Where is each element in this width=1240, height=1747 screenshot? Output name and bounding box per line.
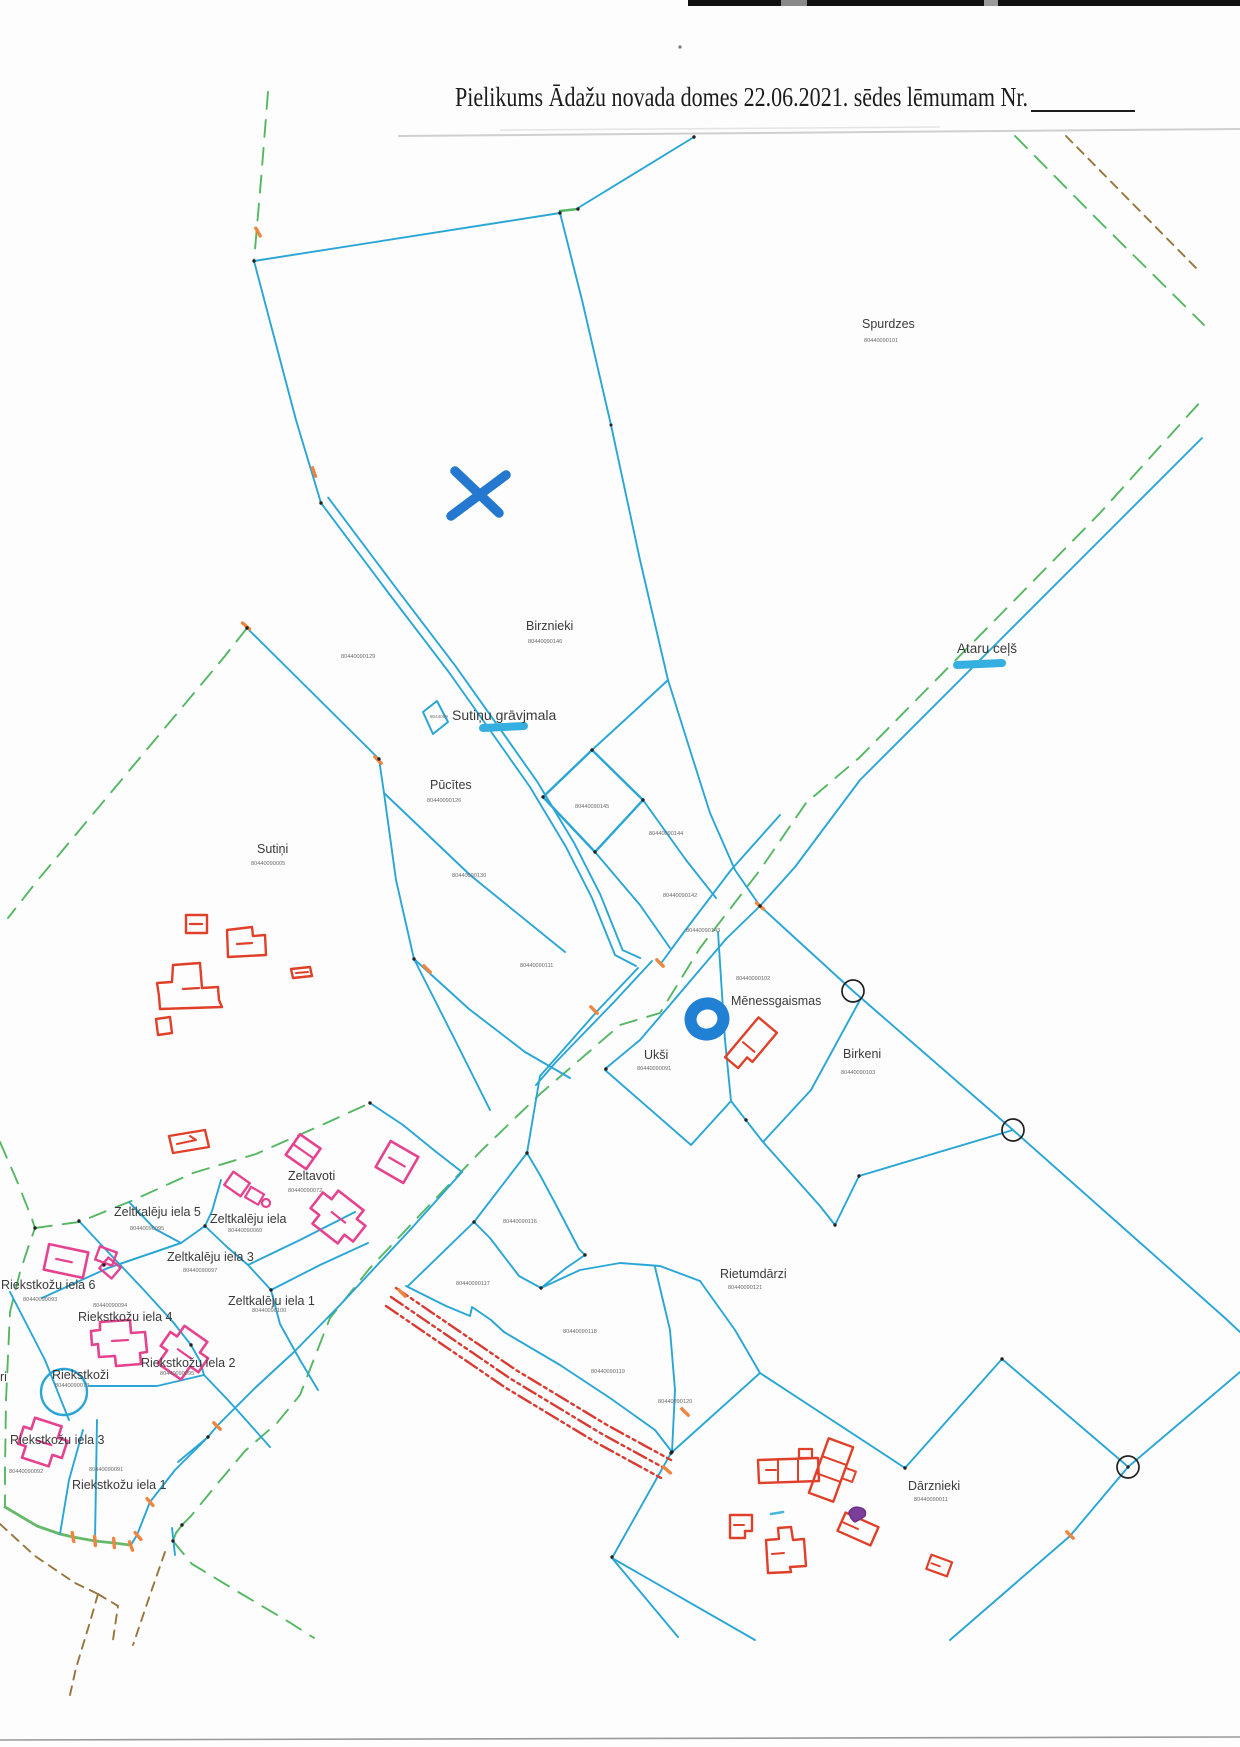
svg-text:Birznieki: Birznieki	[526, 619, 573, 633]
svg-text:Spurdzes: Spurdzes	[862, 317, 915, 331]
svg-text:Rietumdārzi: Rietumdārzi	[720, 1267, 787, 1281]
svg-text:80440090095: 80440090095	[130, 1226, 164, 1232]
svg-text:Riekstkožu iela 3: Riekstkožu iela 3	[10, 1433, 105, 1447]
svg-text:80440090100: 80440090100	[252, 1308, 286, 1314]
svg-text:80440090111: 80440090111	[520, 963, 553, 969]
svg-text:80440090097: 80440090097	[183, 1268, 217, 1274]
svg-text:80440090120: 80440090120	[658, 1399, 692, 1405]
svg-text:80440090121: 80440090121	[728, 1285, 762, 1291]
svg-text:80440090060: 80440090060	[228, 1228, 262, 1234]
svg-text:80440090095: 80440090095	[160, 1371, 194, 1377]
svg-text:80440090143: 80440090143	[686, 928, 720, 934]
svg-text:80440090103: 80440090103	[841, 1070, 875, 1076]
svg-text:80440090142: 80440090142	[663, 893, 697, 899]
svg-text:80440090144: 80440090144	[649, 831, 683, 837]
svg-text:80440090092: 80440090092	[9, 1469, 43, 1475]
svg-text:Sutiņu grāvjmala: Sutiņu grāvjmala	[452, 707, 556, 723]
svg-text:80440090119: 80440090119	[591, 1369, 625, 1375]
svg-text:Riekstkožu iela 6: Riekstkožu iela 6	[1, 1278, 96, 1292]
svg-text:80440090091: 80440090091	[89, 1467, 123, 1473]
svg-text:80440090101: 80440090101	[864, 338, 898, 344]
svg-text:80440090011: 80440090011	[914, 1497, 948, 1503]
svg-text:80440090072: 80440090072	[288, 1188, 322, 1194]
svg-text:80440090093: 80440090093	[23, 1297, 57, 1303]
svg-text:80440090116: 80440090116	[503, 1219, 537, 1225]
svg-text:Mēnessgaismas: Mēnessgaismas	[731, 994, 821, 1008]
svg-text:Zeltkalēju iela: Zeltkalēju iela	[210, 1212, 286, 1226]
svg-text:Dārznieki: Dārznieki	[908, 1479, 960, 1493]
svg-text:Zeltkalēju iela 1: Zeltkalēju iela 1	[228, 1294, 315, 1308]
svg-text:80440090073: 80440090073	[55, 1383, 89, 1389]
svg-text:Sutiņi: Sutiņi	[257, 842, 288, 856]
svg-text:80440090091: 80440090091	[637, 1066, 671, 1072]
svg-text:80440090117: 80440090117	[456, 1281, 490, 1287]
svg-text:80440090126: 80440090126	[427, 798, 461, 804]
svg-text:8044009: 8044009	[430, 714, 448, 719]
svg-text:80440090146: 80440090146	[528, 639, 562, 645]
svg-text:Ukši: Ukši	[644, 1048, 668, 1062]
svg-text:Ataru ceļš: Ataru ceļš	[957, 641, 1017, 656]
svg-text:Pūcītes: Pūcītes	[430, 778, 472, 792]
svg-text:80440090130: 80440090130	[452, 873, 486, 879]
svg-text:Riekstkožu iela 4: Riekstkožu iela 4	[78, 1310, 173, 1324]
svg-text:80440090094: 80440090094	[93, 1303, 127, 1309]
svg-text:Birkeni: Birkeni	[843, 1047, 881, 1061]
svg-text:Zeltkalēju iela 5: Zeltkalēju iela 5	[114, 1205, 201, 1219]
svg-text:80440090102: 80440090102	[736, 976, 770, 982]
svg-text:80440090118: 80440090118	[563, 1329, 597, 1335]
svg-text:Zeltkalēju iela 3: Zeltkalēju iela 3	[167, 1250, 254, 1264]
svg-text:80440090145: 80440090145	[575, 804, 609, 810]
svg-text:Zeltavoti: Zeltavoti	[288, 1169, 335, 1183]
svg-text:Riekstkoži: Riekstkoži	[52, 1368, 109, 1382]
svg-text:Riekstkožu iela 1: Riekstkožu iela 1	[72, 1478, 167, 1492]
svg-text:80440090005: 80440090005	[251, 861, 285, 867]
svg-text:Riekstkožu iela 2: Riekstkožu iela 2	[141, 1356, 236, 1370]
svg-text:Pielikums Ādažu novada domes 2: Pielikums Ādažu novada domes 22.06.2021.…	[455, 82, 1028, 112]
svg-text:ri: ri	[0, 1370, 7, 1384]
svg-text:80440090129: 80440090129	[341, 654, 375, 660]
